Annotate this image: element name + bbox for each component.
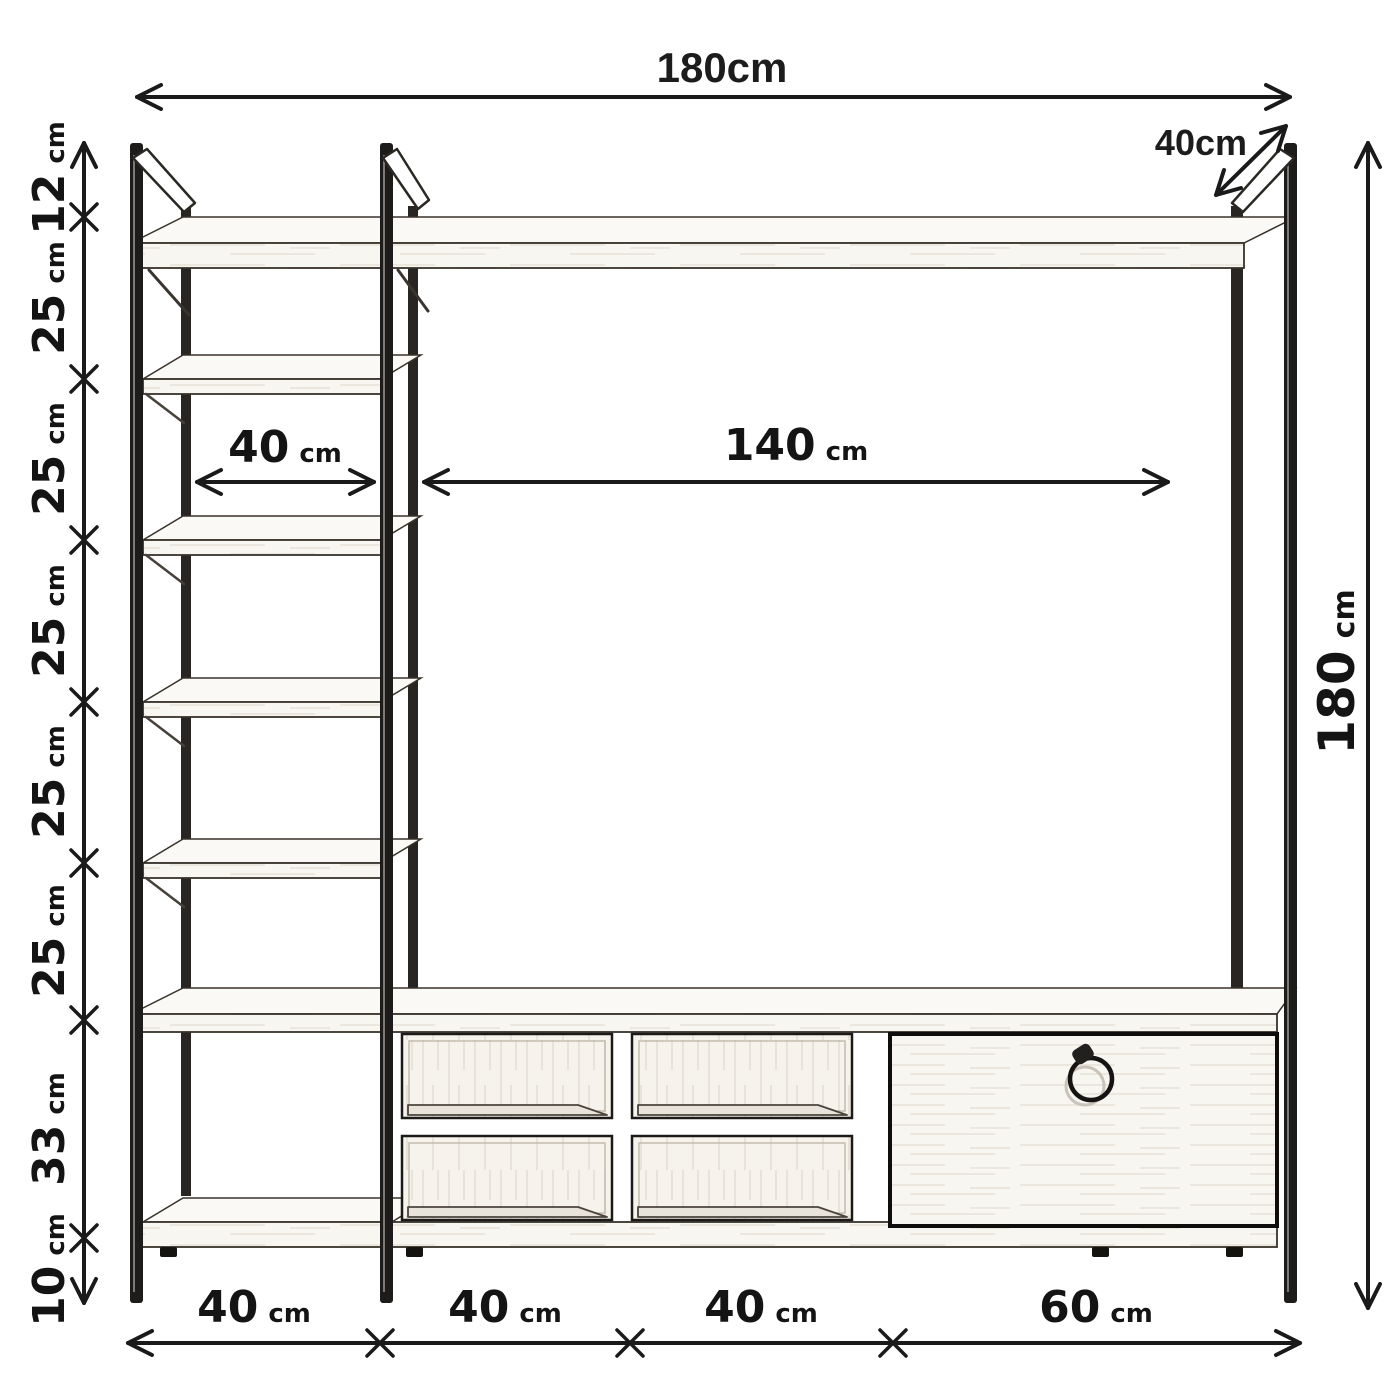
- top-shelf-surface: [131, 217, 1296, 243]
- bench-top-surface: [131, 988, 1296, 1014]
- dim-unit: cm: [41, 121, 71, 164]
- cubby-top-left: [402, 1034, 612, 1118]
- cubby-bottom-right: [632, 1136, 852, 1220]
- dim-number: 12: [24, 174, 75, 235]
- shelf-side-edge: [146, 878, 184, 907]
- dim-unit: cm: [826, 437, 869, 467]
- dim-number: 25: [24, 937, 75, 998]
- shelf-front: [143, 863, 381, 878]
- dim-number: 140: [724, 420, 816, 471]
- dim-number: 60: [1039, 1282, 1100, 1333]
- dim-label-depth: 40cm: [1155, 122, 1247, 163]
- dim-number: 40: [228, 422, 289, 473]
- dim-label-height-10: 10cm: [24, 1213, 75, 1327]
- dim-unit: cm: [299, 439, 342, 469]
- dim-label-bottom-40a: 40cm: [197, 1282, 311, 1333]
- drawer: [890, 1034, 1277, 1226]
- foot: [1092, 1247, 1109, 1257]
- dim-unit: cm: [1110, 1299, 1153, 1329]
- post-front-left: [130, 143, 143, 1303]
- technical-drawing-canvas: 180cm 40cm 180cm 12cm 25cm 25cm 25cm 25c…: [0, 0, 1400, 1400]
- post-back-right-corner: [1284, 143, 1297, 1303]
- dim-unit: cm: [41, 241, 71, 284]
- shelf-front: [143, 540, 381, 555]
- foot: [160, 1247, 177, 1257]
- foot: [406, 1247, 423, 1257]
- shelf-side-edge: [146, 555, 184, 584]
- shelf-surface: [143, 839, 421, 863]
- dim-label-overall-height: 180cm: [1308, 589, 1366, 754]
- dim-number: 10: [24, 1266, 75, 1327]
- dim-unit: cm: [41, 402, 71, 445]
- dim-unit: cm: [519, 1299, 562, 1329]
- dim-unit: cm: [268, 1299, 311, 1329]
- dim-label-height-33: 33cm: [24, 1072, 75, 1186]
- dim-number: 25: [24, 455, 75, 516]
- shelf-side-edge: [146, 717, 184, 746]
- post-back-middle: [408, 206, 418, 1030]
- post-front-middle: [380, 143, 393, 1303]
- dim-unit: cm: [775, 1299, 818, 1329]
- dim-number: 40: [704, 1282, 765, 1333]
- cubby-bottom-shadow: [408, 1105, 607, 1115]
- dim-number: 33: [24, 1125, 75, 1186]
- shelf-front: [143, 379, 381, 394]
- dim-number: 25: [24, 294, 75, 355]
- bench-top-front: [131, 1014, 1277, 1032]
- cubby-bottom-shadow: [638, 1207, 847, 1217]
- dim-label-inner-140: 140cm: [724, 420, 868, 471]
- cubby-bottom-left: [402, 1136, 612, 1220]
- post-front-right: [1231, 206, 1243, 1030]
- furniture-drawing: [130, 143, 1297, 1303]
- dim-unit: cm: [41, 884, 71, 927]
- dim-label-height-25c: 25cm: [24, 564, 75, 678]
- dim-label-bottom-40b: 40cm: [448, 1282, 562, 1333]
- dim-label-height-25a: 25cm: [24, 241, 75, 355]
- post-bar: [130, 143, 143, 1303]
- cubby-bottom-shadow: [408, 1207, 607, 1217]
- cubby-bottom-shadow: [638, 1105, 847, 1115]
- shelf-surface: [143, 355, 421, 379]
- shelf-surface: [143, 678, 421, 702]
- post-bar: [380, 143, 393, 1303]
- dim-unit: cm: [41, 1072, 71, 1115]
- top-shelf-front: [131, 243, 1244, 268]
- dim-label-height-25e: 25cm: [24, 884, 75, 998]
- dim-number: 25: [24, 617, 75, 678]
- dim-number: 40: [197, 1282, 258, 1333]
- dim-label-inner-40: 40cm: [228, 422, 342, 473]
- foot: [1226, 1247, 1243, 1257]
- shelf-front: [143, 702, 381, 717]
- dim-unit: cm: [41, 725, 71, 768]
- cubby-top-right: [632, 1034, 852, 1118]
- dim-label-height-25b: 25cm: [24, 402, 75, 516]
- dim-number: 40: [448, 1282, 509, 1333]
- technical-drawing-page: 180cm 40cm 180cm 12cm 25cm 25cm 25cm 25c…: [0, 0, 1400, 1400]
- dim-label-bottom-40c: 40cm: [704, 1282, 818, 1333]
- dim-label-overall-width: 180cm: [657, 44, 788, 91]
- dim-number: 180: [1308, 650, 1366, 754]
- dim-unit: cm: [41, 1213, 71, 1256]
- shelf-surface: [143, 516, 421, 540]
- dim-label-bottom-60: 60cm: [1039, 1282, 1153, 1333]
- shelf-side-edge: [146, 394, 184, 423]
- dim-unit: cm: [1327, 589, 1362, 638]
- dim-label-height-12: 12cm: [24, 121, 75, 235]
- dim-label-height-25d: 25cm: [24, 725, 75, 839]
- dim-number: 25: [24, 778, 75, 839]
- post-bar: [1284, 143, 1297, 1303]
- dim-unit: cm: [41, 564, 71, 607]
